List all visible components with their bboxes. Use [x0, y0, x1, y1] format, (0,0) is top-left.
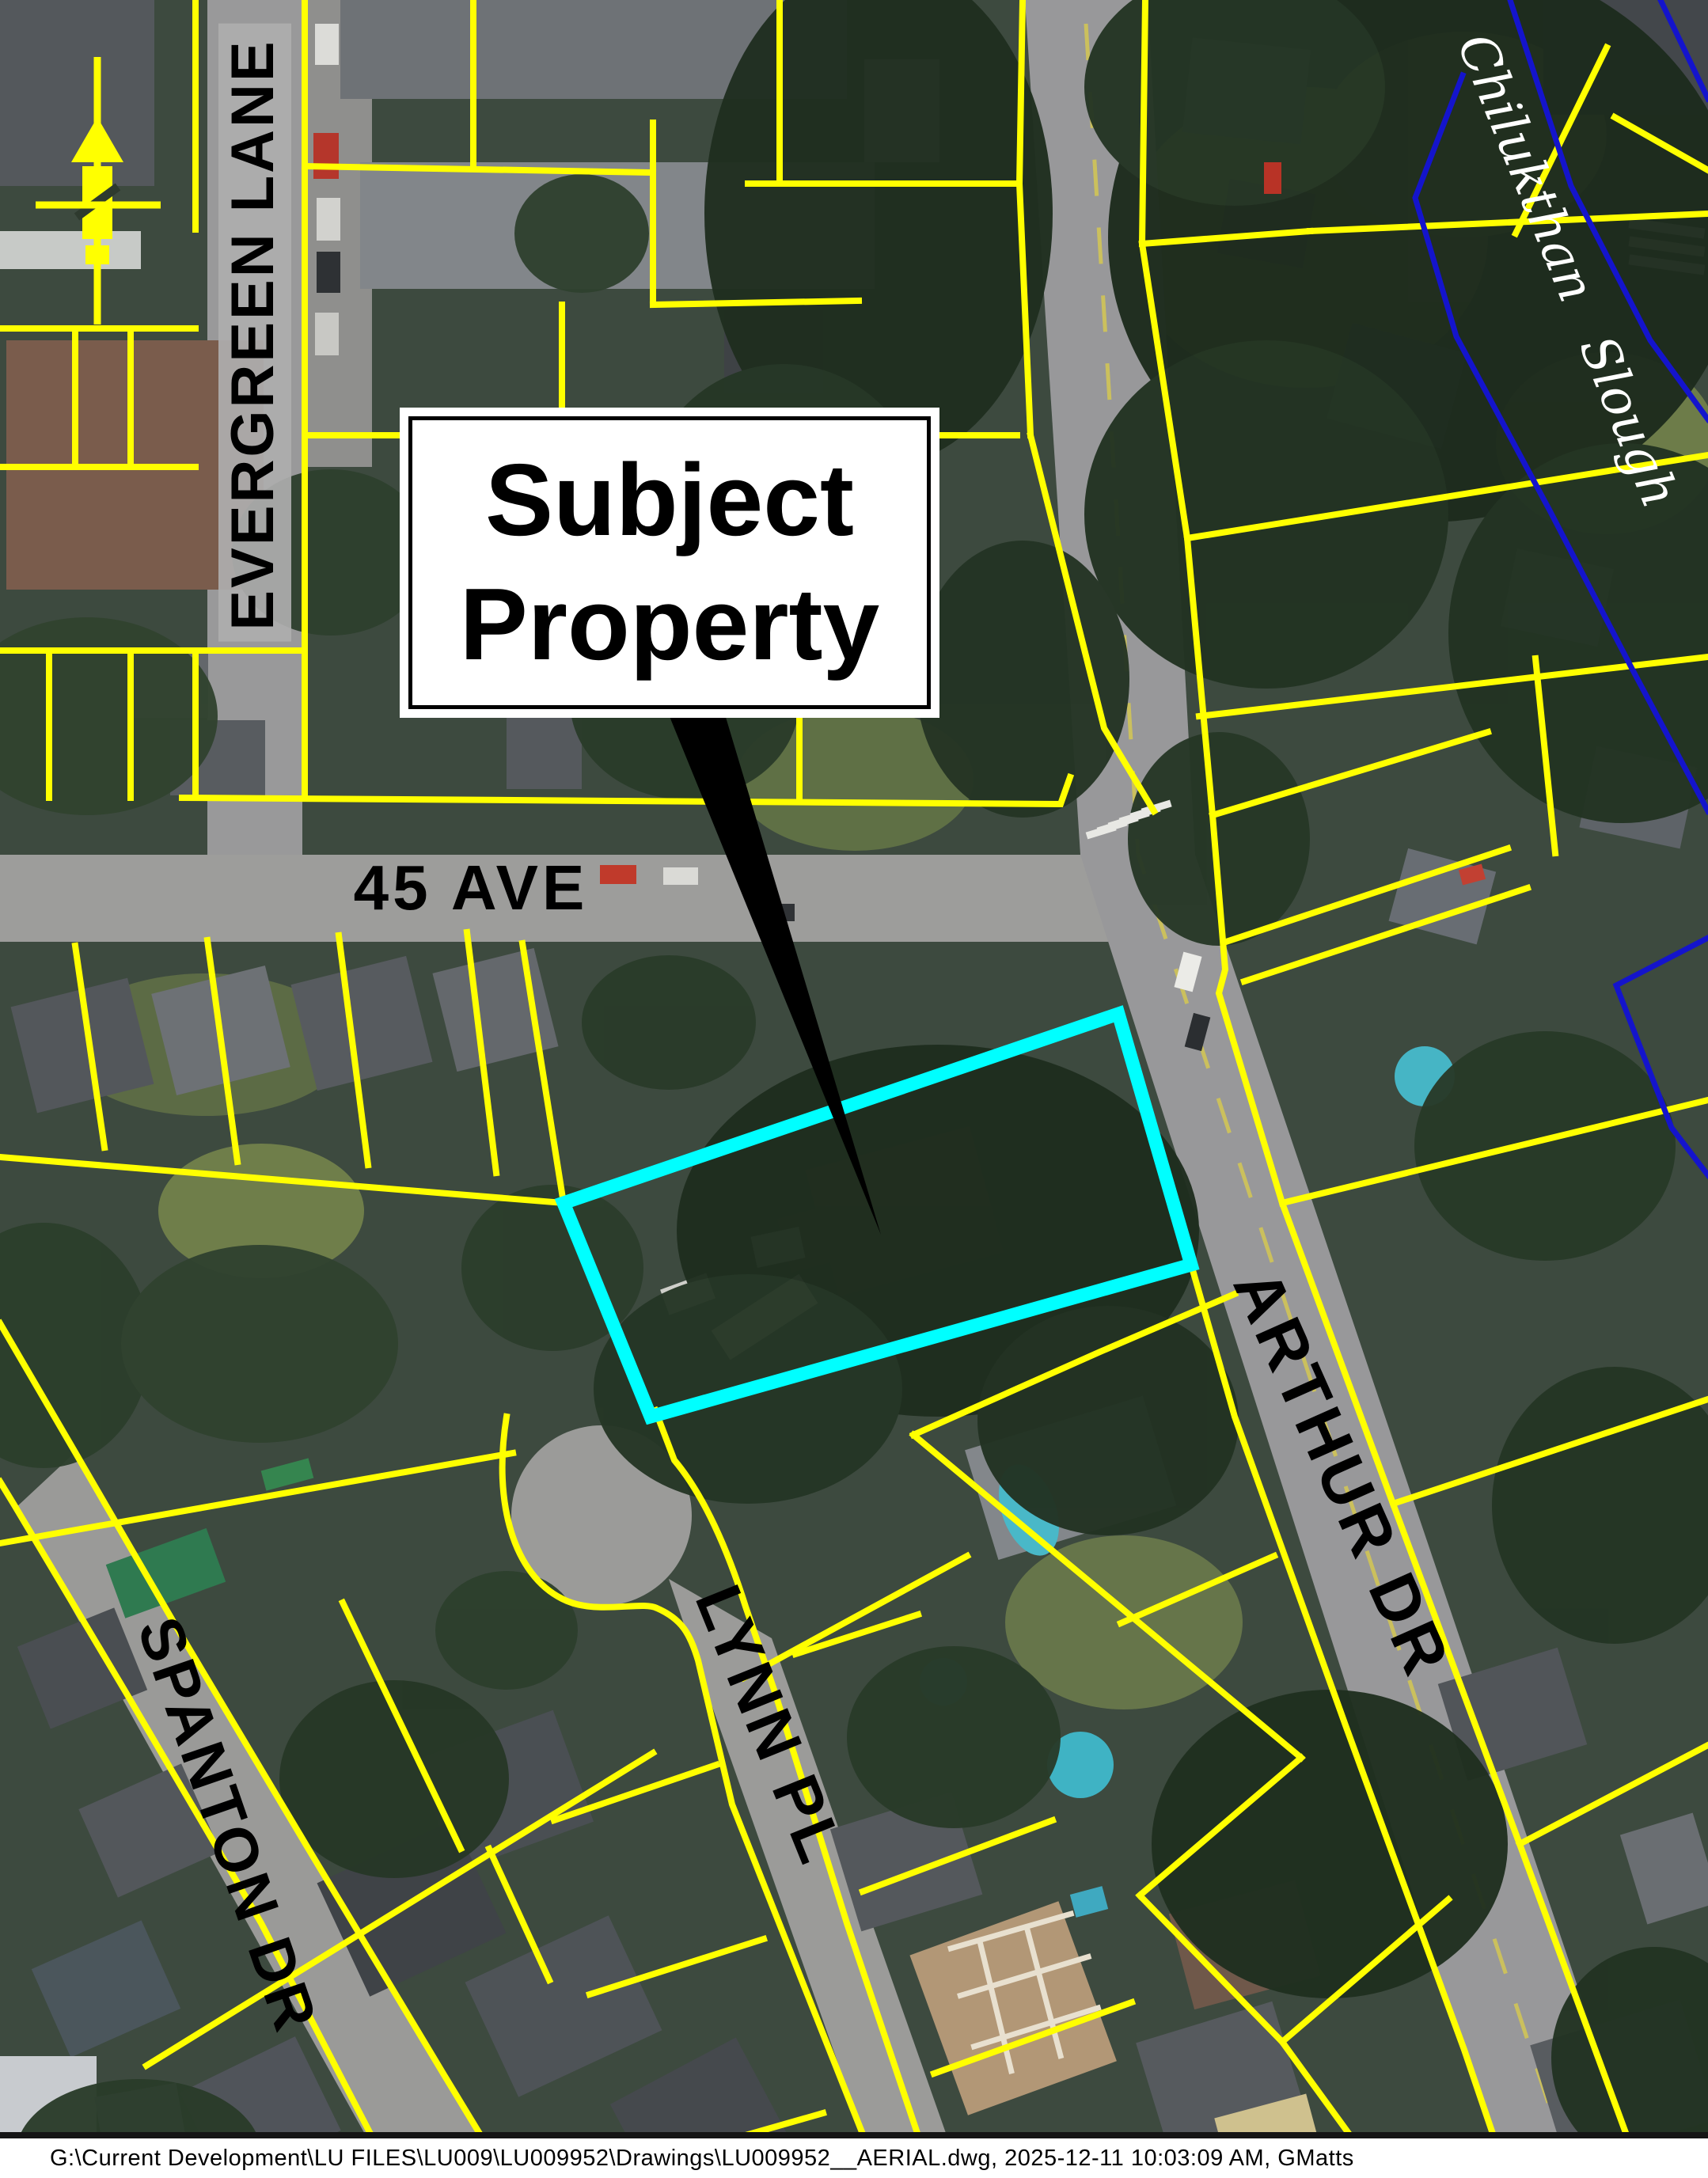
drawing-file-path: G:\Current Development\LU FILES\LU009\LU… — [50, 2146, 1354, 2172]
callout-line-1: Subject — [485, 438, 854, 563]
map-bottom-border — [0, 2132, 1708, 2138]
street-label-evergreen-lane: EVERGREEN LANE — [218, 23, 291, 641]
aerial-map-page: EVERGREEN LANE 45 AVE ARTHUR DR SPANTON … — [0, 0, 1708, 2178]
subject-property-callout: Subject Property — [400, 408, 939, 718]
footer-bar: G:\Current Development\LU FILES\LU009\LU… — [0, 2138, 1708, 2178]
callout-line-2: Property — [460, 563, 880, 687]
street-label-45-ave: 45 AVE — [354, 856, 589, 920]
subject-property-callout-frame: Subject Property — [408, 416, 931, 709]
